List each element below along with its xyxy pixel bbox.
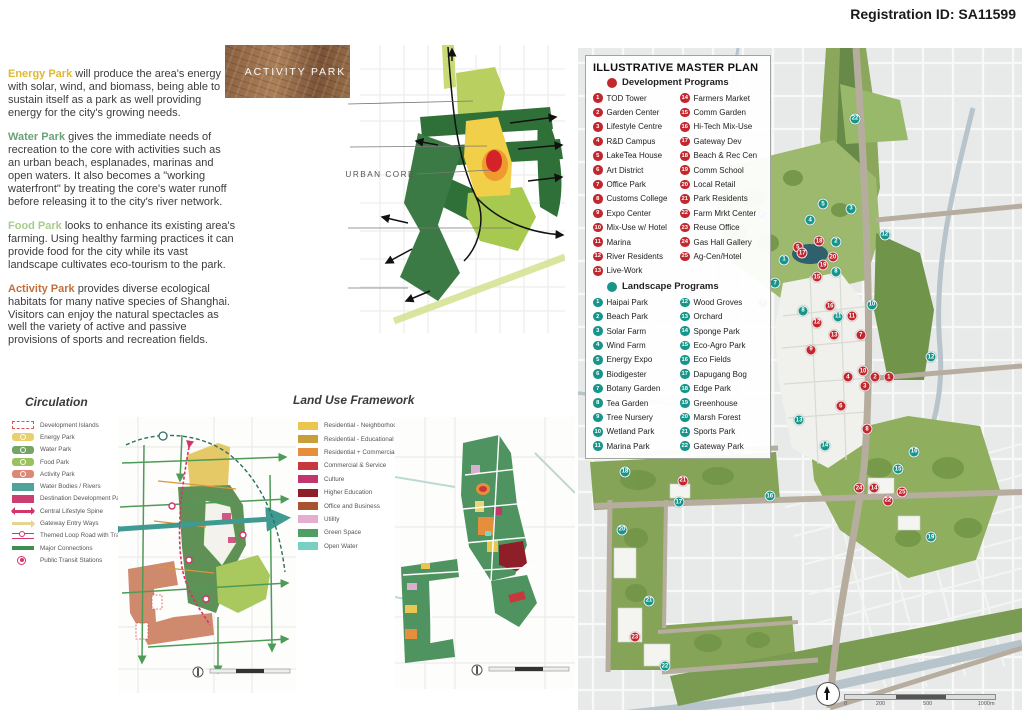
program-item: 9 Tree Nursery [593,410,677,424]
development-marker: 14 [869,483,880,494]
program-number-badge: 13 [593,266,603,276]
program-item: 10 Mix-Use w/ Hotel [593,221,677,235]
legend-item: Food Park [12,456,133,468]
landscape-programs-list: 1 Haipai Park 2 Beach Park 3 Solar Farm … [593,295,764,453]
landscape-marker: 14 [819,440,830,451]
landscape-marker: 11 [833,311,844,322]
legend-item: Central Lifestyle Spine [12,505,133,517]
program-item: 5 LakeTea House [593,149,677,163]
program-item: 12 Wood Groves [680,295,764,309]
legend-swatch [298,422,318,430]
program-label: Beach Park [607,312,648,321]
program-number-badge: 14 [680,326,690,336]
program-label: Tree Nursery [607,413,653,422]
legend-item: Activity Park [12,468,133,480]
program-item: 17 Gateway Dev [680,134,764,148]
legend-swatch [12,470,34,478]
program-item: 2 Garden Center [593,105,677,119]
concept-diagram [360,45,565,333]
presentation-board: Registration ID: SA11599 Energy Park wil… [0,0,1024,724]
program-item: 22 Gateway Park [680,439,764,453]
legend-swatch [12,483,34,491]
legend-label: Open Water [324,543,358,550]
park-photo: ACTIVITY PARK [225,45,350,98]
program-item: 23 Reuse Office [680,221,764,235]
program-item: 18 Edge Park [680,381,764,395]
program-label: Eco-Agro Park [694,341,746,350]
program-label: Greenhouse [694,399,738,408]
scale-bar: 0 200 500 1000m [844,694,996,708]
program-item: 4 R&D Campus [593,134,677,148]
program-label: TOD Tower [607,94,647,103]
intro-paragraph: Water Park gives the immediate needs of … [8,131,236,209]
intro-paragraph: Energy Park will produce the area's ener… [8,68,236,120]
program-label: Tea Garden [607,399,649,408]
legend-label: Residential - Educational [324,436,394,443]
program-number-badge: 19 [680,165,690,175]
program-number-badge: 19 [680,398,690,408]
program-item: 21 Sports Park [680,425,764,439]
program-item: 11 Marina [593,235,677,249]
landscape-marker: 12 [925,352,936,363]
program-label: River Residents [607,252,663,261]
development-marker: 8 [862,424,873,435]
intro-text-column: Energy Park will produce the area's ener… [8,68,236,358]
program-item: 10 Wetland Park [593,425,677,439]
legend-label: Food Park [40,459,69,466]
legend-label: Utility [324,516,339,523]
development-marker: 17 [797,248,808,259]
legend-swatch [12,458,34,466]
legend-swatch [12,421,34,429]
program-number-badge: 11 [593,237,603,247]
landscape-marker: 5 [818,199,829,210]
development-marker: 11 [846,311,857,322]
program-label: Comm School [694,166,744,175]
program-number-badge: 10 [593,223,603,233]
program-number-badge: 2 [593,312,603,322]
regional-station [159,432,167,440]
park-photo-label: ACTIVITY PARK [245,66,346,78]
legend-swatch [12,510,34,513]
legend-item: Themed Loop Road with Tram [12,530,133,542]
program-item: 3 Solar Farm [593,324,677,338]
program-label: Gas Hall Gallery [694,238,752,247]
legend-label: Office and Business [324,503,380,510]
program-number-badge: 4 [593,137,603,147]
landscape-programs-header: Landscape Programs [607,281,764,292]
landuse-title: Land Use Framework [293,393,414,407]
landscape-marker: 1 [779,254,790,265]
development-programs-header: Development Programs [607,77,764,88]
legend-item: Gateway Entry Ways [12,517,133,529]
program-number-badge: 15 [680,108,690,118]
development-marker: 2 [870,372,881,383]
program-label: Orchard [694,312,723,321]
program-item: 25 Ag-Cen/Hotel [680,249,764,263]
program-item: 1 Haipai Park [593,295,677,309]
scale-bar-labels: 0 200 500 1000m [844,700,996,708]
program-number-badge: 6 [593,165,603,175]
program-item: 18 Beach & Rec Cen [680,149,764,163]
program-number-badge: 20 [680,180,690,190]
legend-label: Development Islands [40,422,99,429]
master-plan-section: 1234567891011121314151617181920212223242… [578,48,1022,710]
program-number-badge: 12 [593,252,603,262]
program-number-badge: 8 [593,398,603,408]
legend-swatch [12,446,34,454]
legend-label: Water Park [40,446,71,453]
landscape-marker: 19 [925,532,936,543]
program-label: Marina [607,238,631,247]
program-label: Farmers Market [694,94,750,103]
program-label: Mix-Use w/ Hotel [607,223,667,232]
development-marker: 25 [897,487,908,498]
program-number-badge: 11 [593,441,603,451]
development-marker: 18 [814,236,825,247]
landscape-marker: 8 [798,305,809,316]
program-label: Comm Garden [694,108,746,117]
development-marker: 16 [825,301,836,312]
program-label: Wind Farm [607,341,646,350]
program-label: Dapugang Bog [694,370,747,379]
park-name-lead: Food Park [8,220,62,232]
scale-label: 0 [844,701,847,707]
program-number-badge: 4 [593,341,603,351]
program-item: 13 Orchard [680,309,764,323]
program-item: 7 Botany Garden [593,381,677,395]
program-label: LakeTea House [607,151,663,160]
landscape-marker: 3 [846,203,857,214]
circulation-map [118,417,296,693]
program-number-badge: 21 [680,427,690,437]
development-marker: 21 [677,475,688,486]
legend-swatch [298,489,318,497]
program-item: 15 Eco-Agro Park [680,338,764,352]
legend-label: Major Connections [40,545,93,552]
program-item: 19 Comm School [680,163,764,177]
program-label: Hi-Tech Mix-Use [694,122,753,131]
program-item: 20 Marsh Forest [680,410,764,424]
north-arrow-icon [816,682,840,706]
program-item: 16 Hi-Tech Mix-Use [680,120,764,134]
scale-label: 1000m [978,701,995,707]
program-item: 16 Eco Fields [680,353,764,367]
program-number-badge: 14 [680,93,690,103]
program-number-badge: 1 [593,298,603,308]
program-number-badge: 7 [593,180,603,190]
program-label: Wood Groves [694,298,743,307]
program-number-badge: 1 [593,93,603,103]
program-number-badge: 24 [680,237,690,247]
program-label: Sports Park [694,427,736,436]
landscape-marker: 16 [909,446,920,457]
program-number-badge: 25 [680,252,690,262]
program-item: 9 Expo Center [593,206,677,220]
landscape-marker: 18 [620,466,631,477]
program-label: R&D Campus [607,137,656,146]
program-number-badge: 17 [680,137,690,147]
program-label: Lifestyle Centre [607,122,663,131]
legend-label: Green Space [324,529,361,536]
landscape-marker: 22 [850,113,861,124]
landscape-marker: 2 [830,236,841,247]
program-label: Eco Fields [694,355,731,364]
program-item: 19 Greenhouse [680,396,764,410]
legend-swatch [298,542,318,550]
map-scale-bar [472,665,569,675]
landscape-marker: 7 [770,278,781,289]
development-marker: 4 [842,372,853,383]
program-item: 17 Dapugang Bog [680,367,764,381]
program-label: Solar Farm [607,327,647,336]
legend-item: Major Connections [12,542,133,554]
program-label: Botany Garden [607,384,661,393]
master-plan-title: ILLUSTRATIVE MASTER PLAN [593,62,764,74]
landscape-marker: 4 [805,215,816,226]
legend-label: Activity Park [40,471,75,478]
legend-swatch [298,435,318,443]
program-label: Local Retail [694,180,736,189]
legend-label: Central Lifestyle Spine [40,508,103,515]
program-label: Gateway Park [694,442,744,451]
master-plan-legend: ILLUSTRATIVE MASTER PLAN Development Pro… [585,55,771,459]
development-programs-label: Development Programs [622,77,729,88]
development-marker: 10 [858,366,869,377]
legend-swatch [12,546,34,550]
landscape-marker: 15 [893,464,904,475]
registration-id: Registration ID: SA11599 [850,6,1016,22]
legend-item: Water Park [12,444,133,456]
legend-label: Energy Park [40,434,75,441]
legend-item: Destination Development Parcels [12,493,133,505]
core-hotspot [486,150,502,172]
program-number-badge: 22 [680,209,690,219]
legend-label: Residential - Neighborhood [324,422,400,429]
development-marker: 6 [835,401,846,412]
program-item: 6 Biodigester [593,367,677,381]
program-label: Sponge Park [694,327,740,336]
legend-swatch [12,433,34,441]
program-label: Gateway Dev [694,137,742,146]
program-label: Office Park [607,180,646,189]
legend-swatch [298,462,318,470]
development-marker: 1 [883,372,894,383]
legend-swatch [12,533,34,539]
landscape-marker: 21 [644,595,655,606]
legend-item: Water Bodies / Rivers [12,480,133,492]
legend-swatch [298,515,318,523]
program-number-badge: 22 [680,441,690,451]
program-label: Edge Park [694,384,731,393]
program-label: Ag-Cen/Hotel [694,252,742,261]
landscape-programs-label: Landscape Programs [622,281,719,292]
program-number-badge: 16 [680,122,690,132]
legend-label: Higher Education [324,489,372,496]
program-item: 3 Lifestyle Centre [593,120,677,134]
landscape-marker: 8 [830,266,841,277]
program-number-badge: 9 [593,413,603,423]
program-item: 8 Customs College [593,192,677,206]
landuse-section: Land Use Framework Residential - Neighbo… [290,393,578,700]
landscape-marker: 13 [794,415,805,426]
program-item: 15 Comm Garden [680,105,764,119]
development-marker: 22 [882,495,893,506]
concept-framework-section: Concept Framework ENERGY PARK WATER PARK… [225,45,565,333]
program-item: 11 Marina Park [593,439,677,453]
program-number-badge: 6 [593,369,603,379]
program-number-badge: 16 [680,355,690,365]
program-number-badge: 21 [680,194,690,204]
legend-item: Public Transit Stations [12,554,133,566]
legend-swatch [298,475,318,483]
program-number-badge: 3 [593,122,603,132]
energy-park-area [187,443,230,487]
program-item: 6 Art District [593,163,677,177]
landscape-marker: 16 [764,491,775,502]
development-marker: 3 [859,381,870,392]
scale-label: 500 [923,701,932,707]
program-number-badge: 9 [593,209,603,219]
program-item: 20 Local Retail [680,177,764,191]
development-marker: 7 [855,330,866,341]
program-item: 1 TOD Tower [593,91,677,105]
program-label: Energy Expo [607,355,653,364]
legend-label: Public Transit Stations [40,557,102,564]
landscape-dot-icon [607,282,617,292]
development-marker: 20 [827,252,838,263]
program-number-badge: 15 [680,341,690,351]
program-label: Biodigester [607,370,647,379]
legend-swatch [298,529,318,537]
program-label: Beach & Rec Cen [694,151,758,160]
program-number-badge: 8 [593,194,603,204]
program-item: 7 Office Park [593,177,677,191]
landscape-marker: 12 [879,229,890,240]
program-label: Marina Park [607,442,650,451]
program-item: 4 Wind Farm [593,338,677,352]
landscape-marker: 22 [660,661,671,672]
legend-item: Development Islands [12,419,133,431]
development-marker: 24 [854,483,865,494]
program-label: Live-Work [607,266,643,275]
legend-label: Gateway Entry Ways [40,520,99,527]
development-marker: 19 [818,260,829,271]
program-number-badge: 5 [593,355,603,365]
program-item: 21 Park Residents [680,192,764,206]
program-label: Customs College [607,194,668,203]
scale-label: 200 [876,701,885,707]
program-number-badge: 23 [680,223,690,233]
program-number-badge: 20 [680,413,690,423]
park-name-lead: Water Park [8,131,65,143]
program-number-badge: 5 [593,151,603,161]
development-marker: 12 [811,317,822,328]
program-item: 14 Sponge Park [680,324,764,338]
development-marker: 9 [806,344,817,355]
program-number-badge: 18 [680,384,690,394]
program-number-badge: 12 [680,298,690,308]
landscape-marker: 17 [673,497,684,508]
intro-paragraph: Activity Park provides diverse ecologica… [8,283,236,348]
program-label: Farm Mrkt Center [694,209,757,218]
park-name-lead: Activity Park [8,283,75,295]
landuse-map [395,417,575,689]
program-label: Haipai Park [607,298,648,307]
program-item: 24 Gas Hall Gallery [680,235,764,249]
park-name-lead: Energy Park [8,68,72,80]
circulation-section: Circulation Development Islands Energy P… [10,395,298,700]
program-item: 12 River Residents [593,249,677,263]
program-label: Wetland Park [607,427,655,436]
program-label: Reuse Office [694,223,740,232]
program-number-badge: 2 [593,108,603,118]
development-dot-icon [607,78,617,88]
program-item: 22 Farm Mrkt Center [680,206,764,220]
program-number-badge: 10 [593,427,603,437]
program-item: 14 Farmers Market [680,91,764,105]
program-number-badge: 18 [680,151,690,161]
legend-swatch [298,448,318,456]
legend-swatch [17,556,26,565]
legend-label: Themed Loop Road with Tram [40,532,125,539]
program-label: Expo Center [607,209,651,218]
program-item: 2 Beach Park [593,309,677,323]
program-number-badge: 7 [593,384,603,394]
program-number-badge: 17 [680,369,690,379]
legend-label: Water Bodies / Rivers [40,483,101,490]
circulation-legend: Development Islands Energy Park Water Pa… [12,419,133,567]
legend-swatch [298,502,318,510]
development-marker: 13 [829,330,840,341]
program-label: Park Residents [694,194,748,203]
legend-label: Culture [324,476,344,483]
program-number-badge: 13 [680,312,690,322]
landscape-marker: 20 [616,524,627,535]
legend-item: Energy Park [12,431,133,443]
development-programs-list: 1 TOD Tower 2 Garden Center 3 Lifestyle … [593,91,764,278]
program-item: 5 Energy Expo [593,353,677,367]
circulation-title: Circulation [25,395,88,409]
development-marker: 15 [811,272,822,283]
program-number-badge: 3 [593,326,603,336]
legend-swatch [12,522,34,525]
program-label: Marsh Forest [694,413,741,422]
legend-label: Commercial & Service [324,462,386,469]
legend-swatch [12,495,34,503]
intro-paragraph: Food Park looks to enhance its existing … [8,220,236,272]
program-label: Art District [607,166,644,175]
program-item: 8 Tea Garden [593,396,677,410]
program-label: Garden Center [607,108,660,117]
landscape-marker: 10 [866,299,877,310]
development-marker: 23 [629,632,640,643]
program-item: 13 Live-Work [593,264,677,278]
